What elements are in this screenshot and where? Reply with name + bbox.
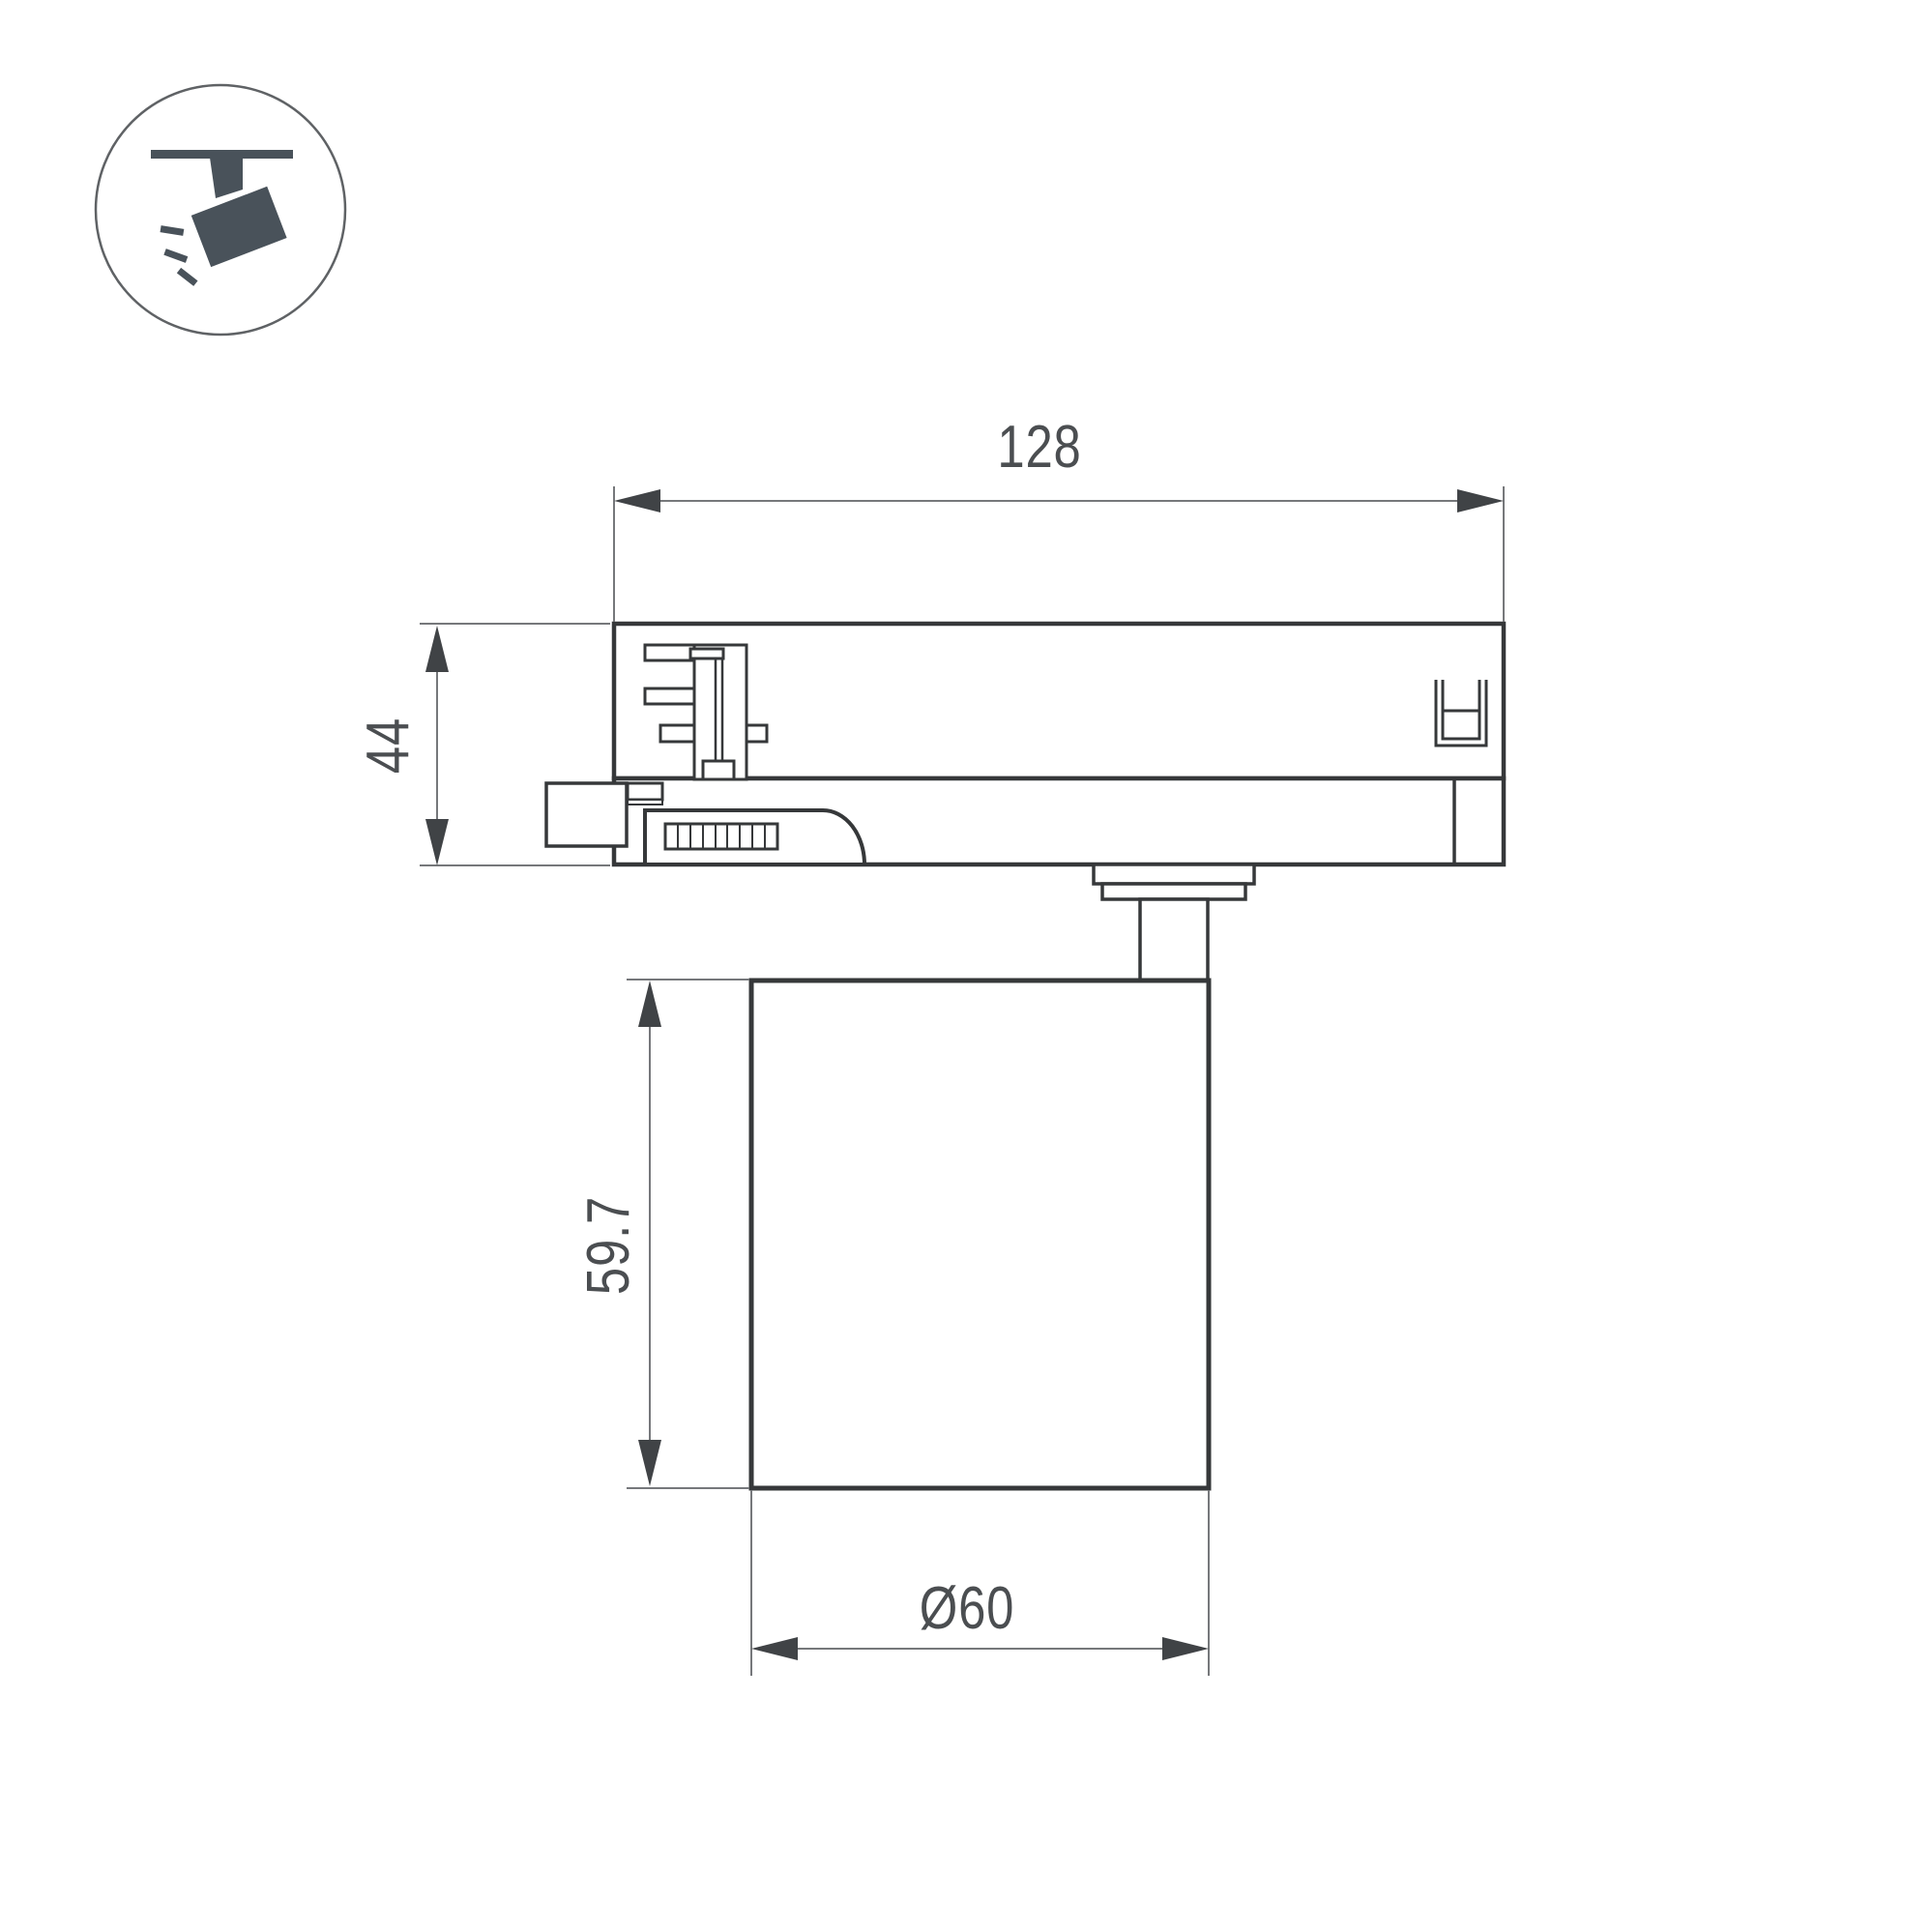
stem-column bbox=[1140, 899, 1208, 981]
dimension-label-track-length: 128 bbox=[997, 418, 1081, 478]
contact-pin-shaft bbox=[716, 659, 722, 761]
stem-flange-lower bbox=[1102, 884, 1245, 899]
dimension-label-lamp-diameter: Ø60 bbox=[920, 1579, 1015, 1639]
icon-track-bar bbox=[151, 150, 293, 159]
arrow-left bbox=[614, 489, 660, 512]
technical-drawing-page: 128 44 59.7 Ø60 bbox=[0, 0, 1932, 1932]
arrow-left bbox=[751, 1637, 798, 1660]
contact-pin-foot bbox=[703, 761, 734, 779]
track-spotlight-icon bbox=[96, 85, 345, 335]
contact-prong-right bbox=[746, 725, 767, 742]
lock-detail-bar bbox=[628, 800, 662, 805]
icon-light-ray bbox=[163, 249, 188, 263]
lock-block bbox=[546, 783, 627, 846]
contact-prong bbox=[645, 645, 694, 660]
arrow-up bbox=[425, 626, 449, 672]
swivel-stem bbox=[1094, 864, 1254, 981]
arrow-down bbox=[425, 819, 449, 865]
icon-light-ray bbox=[161, 225, 185, 236]
stem-flange-upper bbox=[1094, 864, 1254, 884]
lamp-body-outline bbox=[751, 981, 1209, 1488]
contact-pin-cap bbox=[690, 649, 723, 659]
icon-lamp-head bbox=[191, 187, 287, 267]
arrow-up bbox=[638, 981, 661, 1027]
contact-prong bbox=[645, 688, 694, 704]
drawing-linework bbox=[0, 0, 1932, 1932]
dimension-label-lamp-height: 59.7 bbox=[579, 1196, 639, 1295]
lock-detail bbox=[628, 783, 662, 800]
lever-grip bbox=[665, 824, 777, 849]
icon-stem bbox=[210, 158, 243, 198]
contact-prong bbox=[660, 725, 694, 742]
icon-light-ray bbox=[177, 268, 198, 286]
arrow-right bbox=[1457, 489, 1504, 512]
dimension-label-adapter-height: 44 bbox=[359, 717, 419, 774]
arrow-down bbox=[638, 1440, 661, 1486]
arrow-right bbox=[1162, 1637, 1209, 1660]
